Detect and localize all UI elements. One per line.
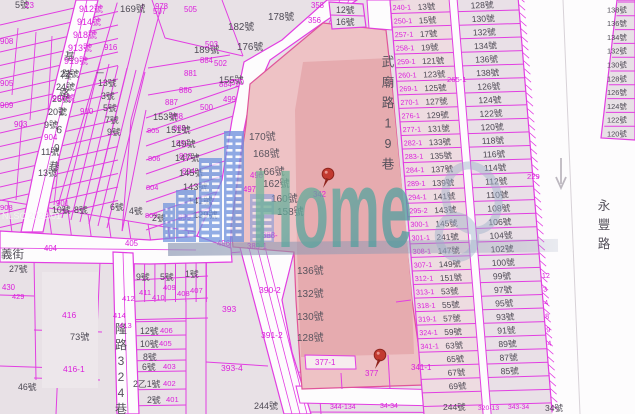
svg-text:118號: 118號 (481, 134, 505, 147)
svg-text:130號: 130號 (607, 60, 627, 71)
svg-text:91號: 91號 (497, 324, 517, 336)
svg-text:85號: 85號 (500, 365, 520, 377)
svg-text:358: 358 (311, 0, 324, 11)
svg-text:23: 23 (25, 0, 34, 11)
svg-text:57號: 57號 (443, 312, 462, 324)
svg-text:393: 393 (222, 303, 236, 315)
svg-text:9號: 9號 (136, 270, 150, 283)
svg-text:884: 884 (200, 55, 214, 66)
svg-text:131號: 131號 (427, 122, 451, 135)
svg-text:313-1: 313-1 (416, 287, 435, 297)
svg-text:886: 886 (179, 85, 192, 96)
svg-text:411: 411 (139, 287, 151, 298)
svg-text:914號: 914號 (77, 15, 101, 28)
svg-text:258-1: 258-1 (396, 43, 415, 53)
svg-text:53號: 53號 (440, 285, 459, 297)
svg-text:406: 406 (160, 325, 173, 336)
svg-text:320-13: 320-13 (478, 402, 499, 412)
svg-text:12號: 12號 (140, 324, 159, 337)
svg-text:13號: 13號 (417, 0, 436, 12)
svg-text:881: 881 (184, 68, 197, 79)
svg-text:2: 2 (118, 368, 125, 385)
svg-text:370: 370 (231, 77, 245, 88)
svg-text:130號: 130號 (471, 12, 495, 25)
svg-text:402: 402 (163, 378, 176, 389)
svg-text:393-4: 393-4 (221, 362, 243, 374)
svg-text:13號: 13號 (98, 76, 117, 89)
svg-text:912號: 912號 (79, 2, 103, 15)
svg-text:500: 500 (200, 102, 214, 113)
svg-text:405: 405 (125, 238, 139, 249)
svg-text:319-1: 319-1 (418, 314, 437, 324)
svg-text:124號: 124號 (607, 101, 627, 112)
svg-text:151號: 151號 (439, 271, 463, 284)
svg-text:996號: 996號 (52, 92, 75, 104)
svg-text:182號: 182號 (228, 19, 254, 33)
svg-text:913號: 913號 (68, 41, 92, 54)
svg-text:149號: 149號 (171, 136, 196, 150)
svg-text:805: 805 (147, 125, 159, 136)
svg-text:100號: 100號 (491, 256, 515, 269)
svg-text:武: 武 (382, 51, 395, 70)
svg-text:NLSC 2025/01: NLSC 2025/01 (2, 209, 61, 222)
svg-text:87號: 87號 (499, 351, 519, 363)
svg-text:義街: 義街 (1, 246, 24, 262)
svg-text:124號: 124號 (478, 94, 502, 107)
svg-text:908: 908 (0, 36, 14, 47)
svg-text:93號: 93號 (496, 311, 516, 323)
svg-text:34號: 34號 (545, 402, 563, 414)
svg-text:16號: 16號 (336, 15, 355, 28)
svg-text:20號: 20號 (48, 105, 67, 118)
svg-text:9: 9 (546, 325, 551, 335)
svg-text:130號: 130號 (297, 308, 324, 323)
svg-text:391-2: 391-2 (261, 329, 283, 341)
svg-text:34-34: 34-34 (380, 401, 398, 411)
svg-text:401: 401 (166, 394, 179, 405)
svg-text:1號: 1號 (185, 267, 199, 280)
svg-text:240-1: 240-1 (392, 3, 411, 13)
svg-text:377: 377 (365, 368, 379, 379)
svg-text:9號: 9號 (107, 125, 121, 138)
svg-text:135號: 135號 (429, 149, 453, 162)
svg-text:270-1: 270-1 (400, 97, 419, 107)
svg-text:126號: 126號 (477, 80, 501, 93)
svg-text:128號: 128號 (297, 329, 324, 344)
svg-text:路: 路 (598, 233, 611, 252)
svg-text:Home: Home (252, 119, 412, 279)
svg-text:19號: 19號 (420, 41, 439, 53)
svg-text:429: 429 (12, 291, 24, 302)
svg-text:13號: 13號 (38, 166, 57, 179)
svg-text:260-1: 260-1 (398, 70, 417, 80)
svg-text:125號: 125號 (424, 82, 448, 95)
svg-text:95號: 95號 (495, 297, 515, 309)
svg-text:59號: 59號 (444, 326, 463, 338)
svg-text:169號: 169號 (120, 1, 146, 15)
svg-text:134號: 134號 (607, 32, 627, 43)
svg-text:307-1: 307-1 (413, 260, 432, 270)
svg-text:路: 路 (382, 92, 395, 111)
svg-text:134號: 134號 (473, 39, 497, 52)
svg-text:120號: 120號 (607, 129, 627, 140)
svg-text:909: 909 (0, 100, 14, 111)
svg-text:豐: 豐 (598, 214, 611, 233)
svg-text:9號: 9號 (44, 118, 58, 131)
svg-text:408: 408 (177, 288, 190, 299)
svg-text:405: 405 (159, 338, 172, 349)
svg-text:136號: 136號 (607, 18, 627, 29)
svg-text:永: 永 (598, 195, 611, 214)
svg-text:136號: 136號 (475, 53, 499, 66)
svg-text:6號: 6號 (142, 360, 156, 373)
svg-text:132號: 132號 (297, 285, 324, 300)
svg-text:132號: 132號 (607, 46, 627, 57)
svg-text:919號: 919號 (64, 54, 88, 67)
svg-text:4: 4 (118, 384, 125, 401)
svg-text:2號: 2號 (147, 393, 161, 406)
svg-text:138號: 138號 (476, 67, 500, 80)
svg-text:344-134: 344-134 (330, 402, 356, 412)
svg-text:123號: 123號 (423, 68, 447, 81)
svg-text:413: 413 (119, 320, 132, 331)
svg-text:412: 412 (122, 293, 135, 304)
svg-text:341-1: 341-1 (420, 341, 439, 351)
svg-text:269-1: 269-1 (399, 84, 418, 94)
svg-text:10號: 10號 (140, 337, 159, 350)
svg-text:17號: 17號 (419, 27, 438, 39)
svg-text:903: 903 (14, 119, 28, 130)
svg-text:4號: 4號 (129, 204, 143, 217)
svg-text:312-1: 312-1 (414, 274, 433, 284)
svg-text:407: 407 (190, 285, 203, 296)
svg-text:176號: 176號 (237, 39, 263, 53)
svg-text:122號: 122號 (479, 107, 503, 120)
svg-text:257-1: 257-1 (394, 30, 413, 40)
svg-text:3: 3 (543, 285, 548, 295)
svg-text:265-1: 265-1 (447, 74, 466, 85)
svg-text:151號: 151號 (166, 122, 191, 136)
svg-text:2乙1號: 2乙1號 (133, 377, 161, 390)
svg-text:147號: 147號 (175, 150, 200, 164)
svg-text:46號: 46號 (18, 380, 37, 393)
svg-text:65號: 65號 (446, 353, 465, 365)
svg-text:132號: 132號 (472, 26, 496, 39)
svg-text:116號: 116號 (482, 148, 506, 161)
svg-text:15號: 15號 (418, 14, 437, 26)
svg-text:416-1: 416-1 (63, 363, 85, 375)
svg-text:806: 806 (148, 153, 160, 164)
svg-text:67號: 67號 (447, 366, 466, 378)
svg-text:99號: 99號 (492, 270, 512, 282)
svg-text:178號: 178號 (268, 9, 294, 23)
svg-text:127號: 127號 (425, 95, 449, 108)
svg-text:126號: 126號 (607, 87, 627, 98)
svg-text:409: 409 (163, 282, 176, 293)
svg-text:8號: 8號 (74, 203, 88, 216)
svg-text:404: 404 (44, 243, 58, 254)
svg-text:8: 8 (545, 312, 550, 322)
svg-text:120號: 120號 (480, 121, 504, 134)
svg-text:377-1: 377-1 (315, 357, 336, 368)
svg-text:318-1: 318-1 (417, 301, 436, 311)
svg-text:3: 3 (118, 352, 125, 369)
svg-text:503: 503 (205, 39, 218, 50)
svg-text:4: 4 (544, 298, 549, 308)
svg-text:55號: 55號 (442, 298, 461, 310)
svg-text:路: 路 (115, 336, 127, 353)
svg-text:4: 4 (547, 339, 552, 349)
svg-text:356: 356 (308, 15, 321, 26)
svg-text:122號: 122號 (607, 115, 627, 126)
svg-text:416: 416 (62, 309, 76, 321)
svg-text:403: 403 (163, 361, 176, 372)
svg-text:324-1: 324-1 (419, 328, 438, 338)
svg-text:22號: 22號 (60, 67, 79, 80)
svg-text:73號: 73號 (70, 329, 89, 343)
svg-text:887: 887 (165, 97, 178, 108)
svg-text:410: 410 (152, 292, 165, 303)
svg-text:502: 502 (214, 58, 227, 69)
svg-text:229: 229 (527, 171, 540, 182)
svg-text:904: 904 (44, 132, 58, 143)
svg-text:89號: 89號 (498, 338, 518, 350)
svg-text:153號: 153號 (153, 109, 178, 123)
svg-text:804: 804 (146, 182, 158, 193)
svg-text:巷: 巷 (115, 400, 127, 414)
svg-text:11號: 11號 (41, 145, 59, 158)
svg-text:128號: 128號 (607, 73, 627, 84)
svg-text:138號: 138號 (607, 4, 627, 15)
svg-text:250-1: 250-1 (393, 16, 412, 26)
svg-text:499: 499 (223, 94, 236, 105)
svg-text:133號: 133號 (428, 136, 452, 149)
svg-text:259-1: 259-1 (397, 57, 416, 67)
svg-text:27號: 27號 (9, 262, 28, 275)
svg-text:12: 12 (542, 271, 551, 281)
svg-text:507: 507 (153, 6, 166, 17)
svg-text:128號: 128號 (470, 0, 494, 11)
svg-text:905: 905 (0, 78, 14, 89)
svg-text:244號: 244號 (443, 401, 466, 413)
svg-text:343-34: 343-34 (508, 401, 529, 411)
svg-text:97號: 97號 (493, 283, 513, 295)
svg-text:916: 916 (104, 42, 118, 53)
svg-text:廟: 廟 (382, 72, 395, 91)
svg-text:341-1: 341-1 (411, 362, 432, 373)
svg-text:63號: 63號 (445, 339, 464, 351)
svg-text:918號: 918號 (73, 28, 97, 41)
svg-text:505: 505 (184, 4, 198, 15)
svg-text:69號: 69號 (448, 380, 467, 392)
svg-text:129號: 129號 (426, 109, 450, 122)
svg-text:244號: 244號 (254, 399, 278, 412)
svg-text:300-1: 300-1 (410, 219, 429, 229)
svg-text:121號: 121號 (422, 54, 446, 67)
svg-text:390-2: 390-2 (259, 284, 281, 296)
svg-text:6號: 6號 (110, 200, 124, 213)
svg-text:910: 910 (80, 106, 94, 117)
